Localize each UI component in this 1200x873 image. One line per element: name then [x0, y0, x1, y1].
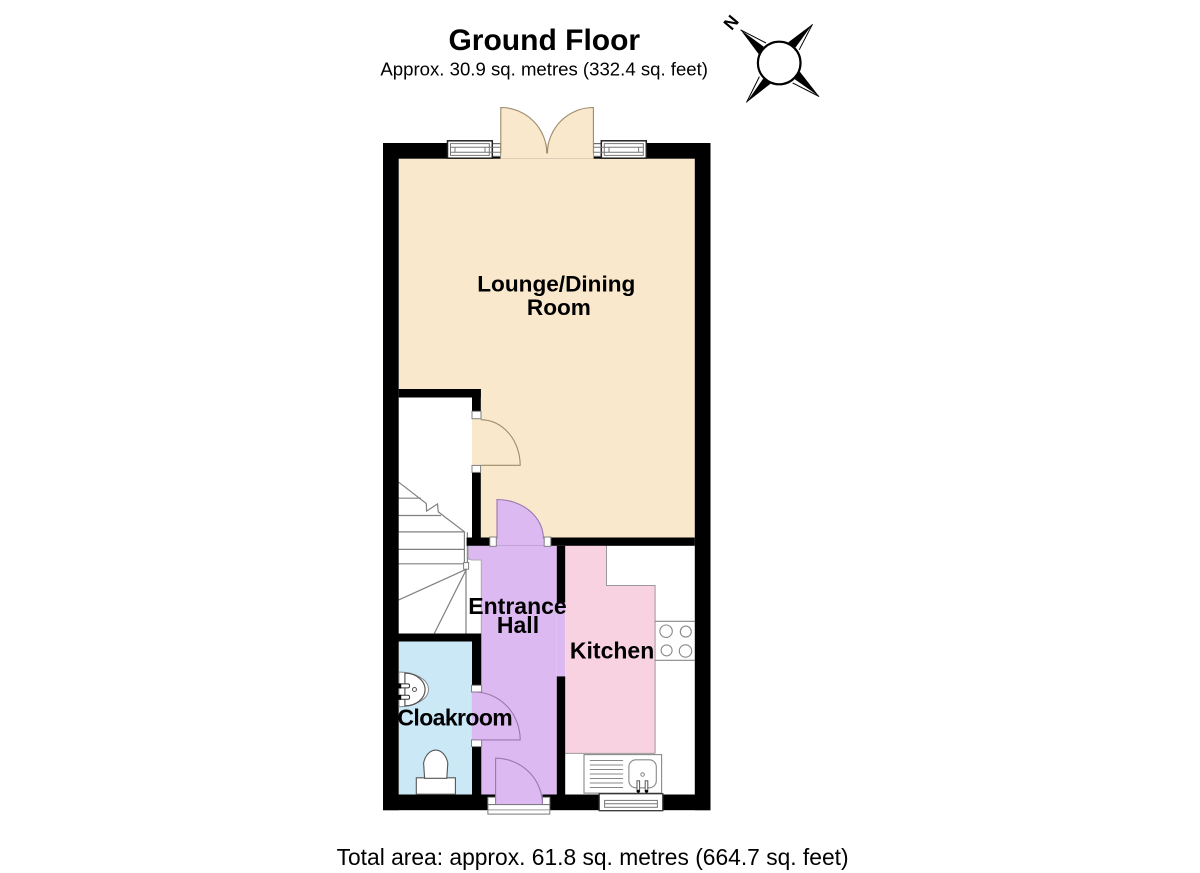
svg-text:Ground Floor: Ground Floor [448, 24, 640, 57]
svg-text:Lounge/Dining: Lounge/Dining [477, 272, 635, 297]
svg-text:Total area: approx. 61.8 sq. m: Total area: approx. 61.8 sq. metres (664… [337, 844, 849, 870]
svg-text:Kitchen: Kitchen [570, 637, 654, 663]
svg-text:Room: Room [527, 295, 591, 320]
svg-text:Hall: Hall [497, 612, 539, 638]
svg-text:Approx. 30.9 sq. metres (332.4: Approx. 30.9 sq. metres (332.4 sq. feet) [380, 58, 708, 79]
svg-text:Cloakroom: Cloakroom [397, 705, 512, 731]
